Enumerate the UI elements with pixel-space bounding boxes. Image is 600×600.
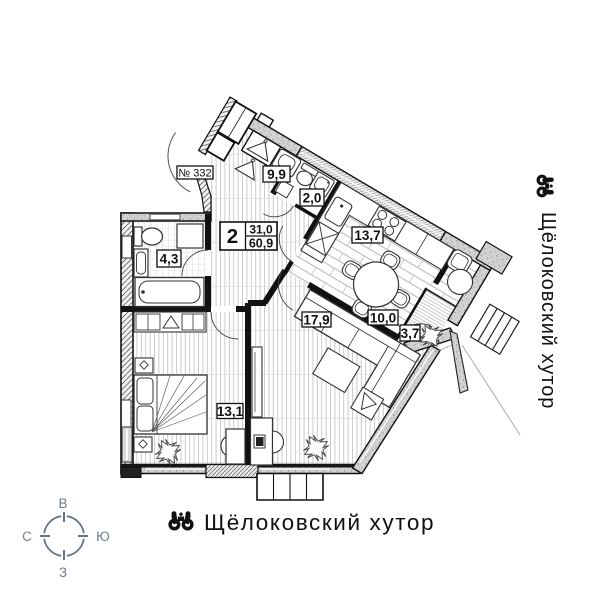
svg-text:В: В: [58, 496, 67, 511]
svg-text:60,9: 60,9: [249, 237, 273, 251]
svg-text:10,0: 10,0: [370, 310, 396, 325]
svg-text:3,7: 3,7: [401, 326, 420, 341]
svg-text:9,9: 9,9: [267, 167, 286, 182]
svg-text:№ 332: № 332: [178, 167, 211, 179]
svg-text:4,3: 4,3: [160, 251, 179, 266]
svg-text:13,1: 13,1: [217, 404, 244, 419]
svg-text:Щёлоковский хутор: Щёлоковский хутор: [537, 212, 559, 409]
svg-text:31,0: 31,0: [249, 223, 273, 237]
svg-text:17,9: 17,9: [303, 312, 329, 327]
svg-text:С: С: [22, 529, 32, 544]
svg-text:Ю: Ю: [96, 529, 110, 544]
svg-text:2: 2: [227, 225, 238, 248]
svg-text:2,0: 2,0: [303, 190, 322, 205]
svg-text:З: З: [59, 565, 67, 580]
svg-text:Щёлоковский хутор: Щёлоковский хутор: [204, 510, 435, 535]
svg-text:13,7: 13,7: [354, 228, 380, 243]
